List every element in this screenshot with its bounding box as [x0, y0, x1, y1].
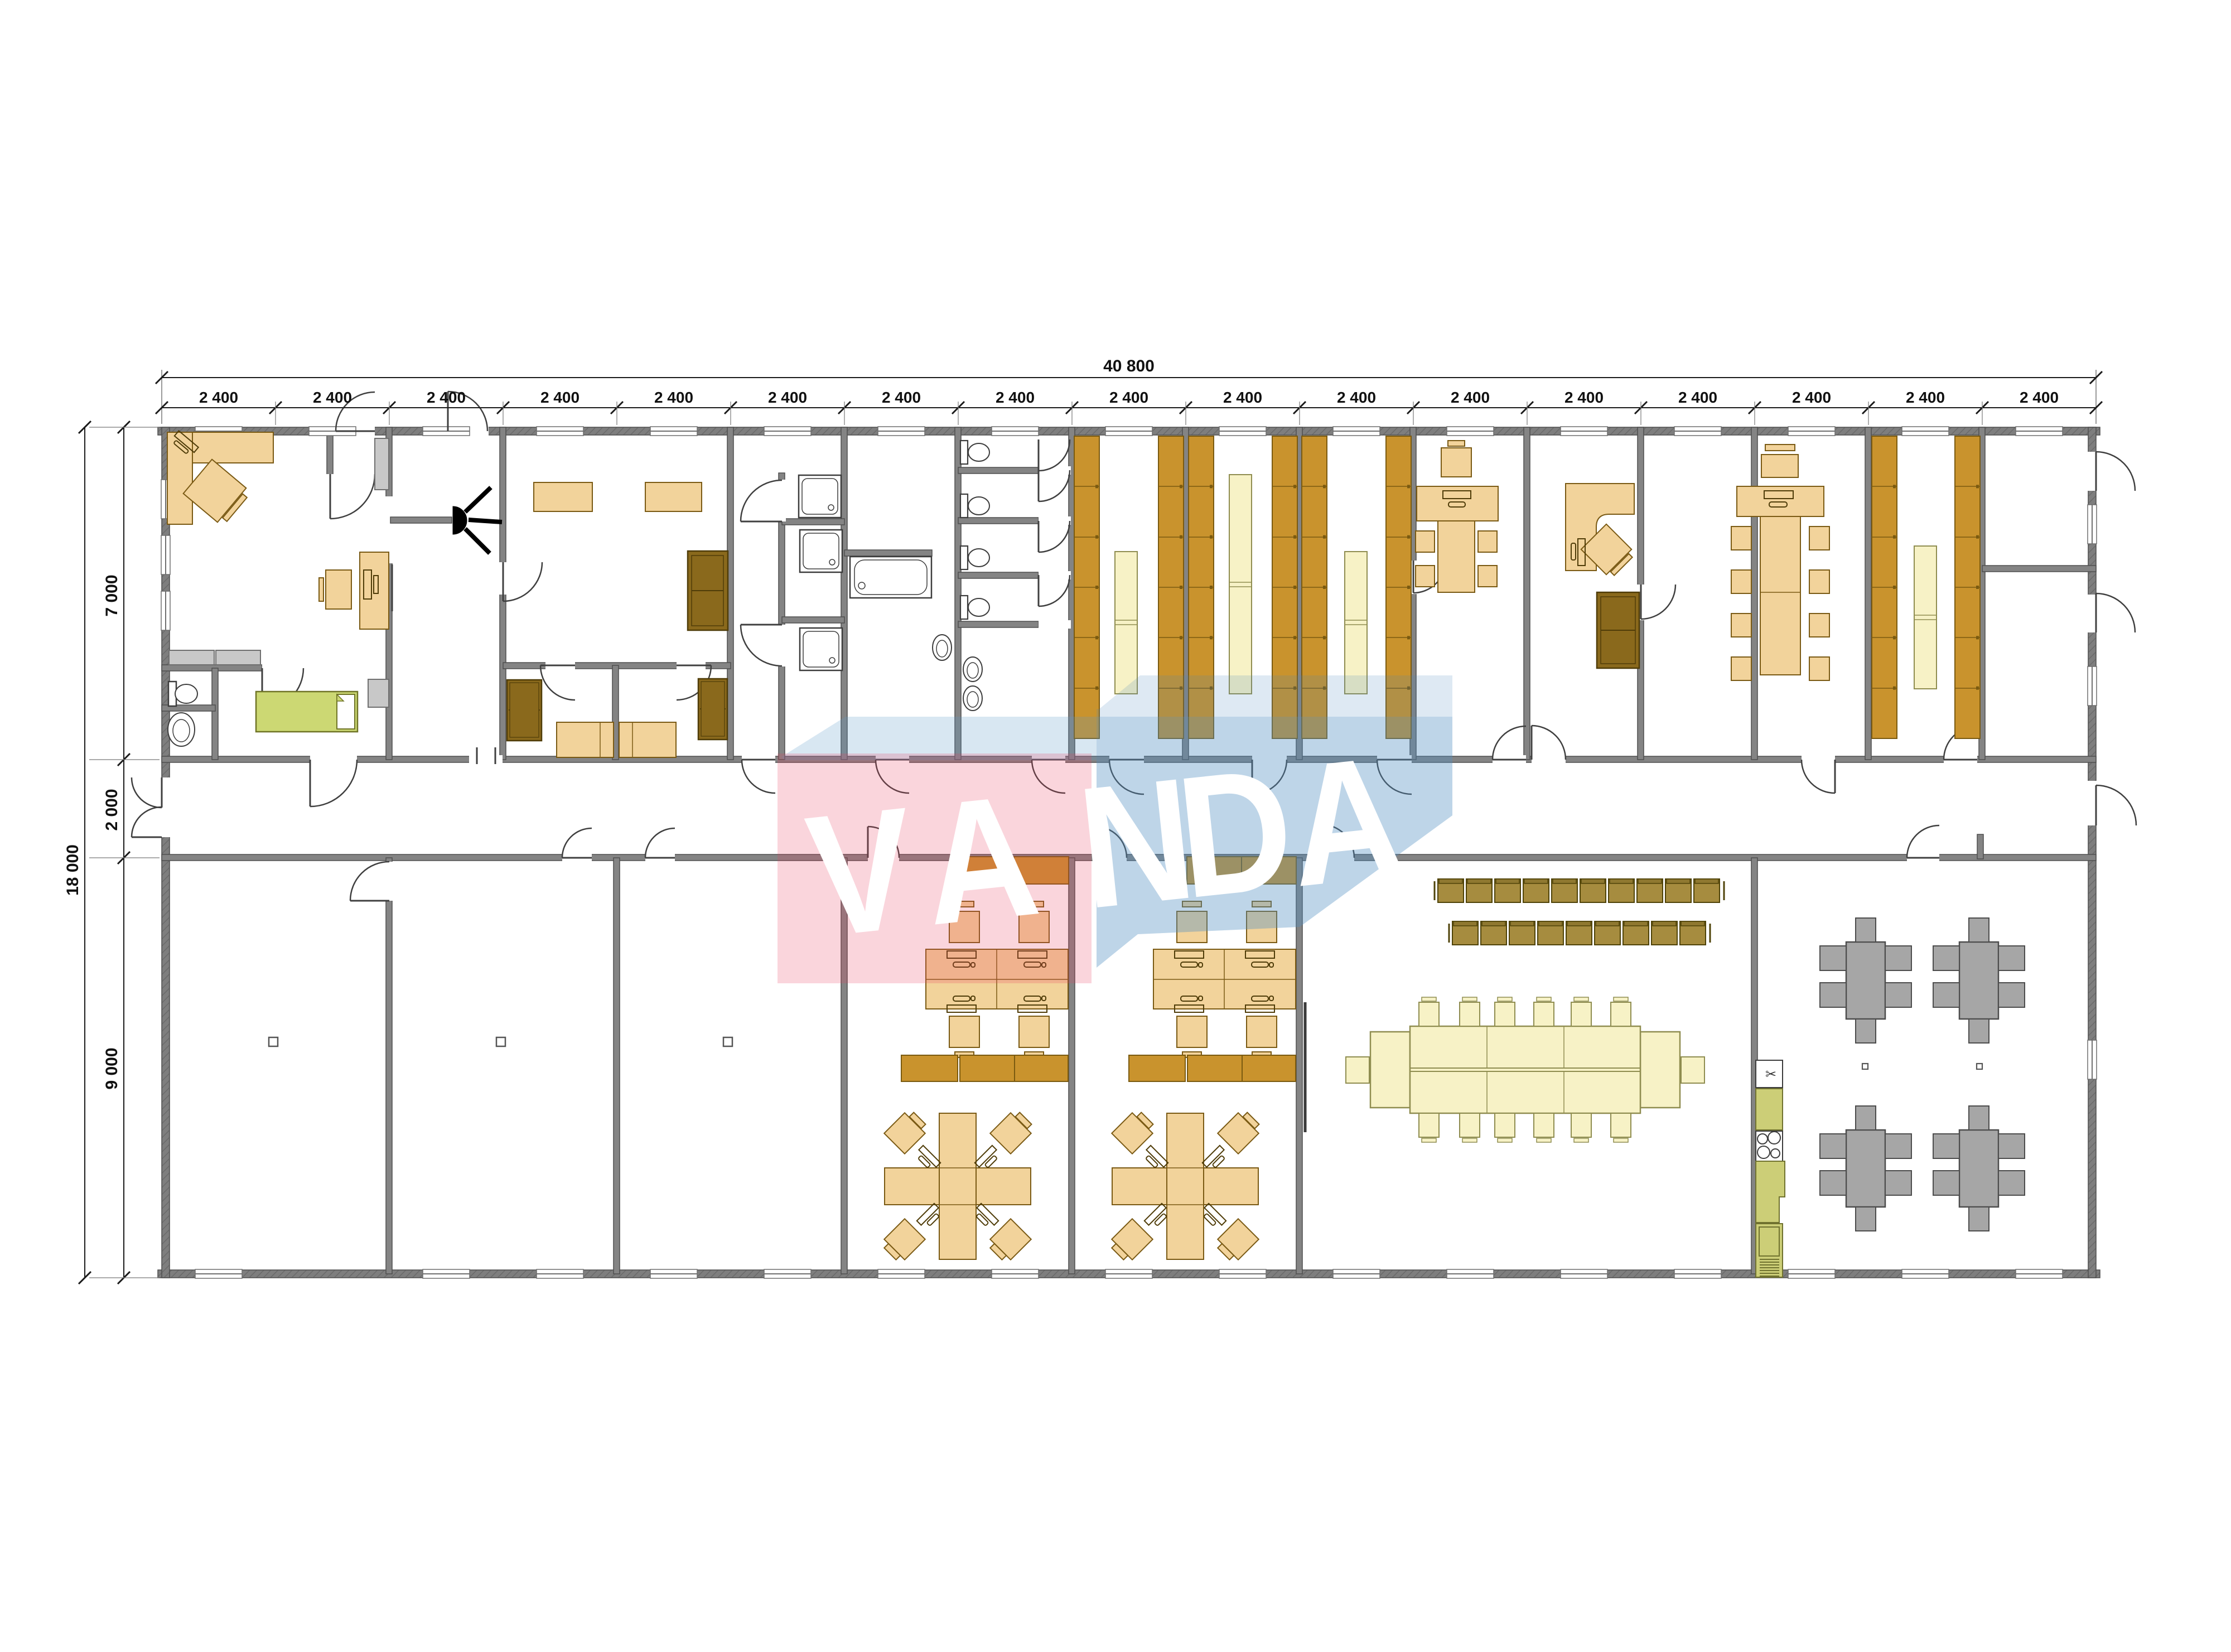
svg-text:18 000: 18 000 [64, 844, 82, 896]
svg-text:2 400: 2 400 [1564, 389, 1604, 406]
svg-text:2 400: 2 400 [313, 389, 352, 406]
svg-text:2 400: 2 400 [1906, 389, 1945, 406]
svg-text:V: V [799, 771, 924, 974]
svg-text:2 400: 2 400 [1109, 389, 1148, 406]
svg-text:2 400: 2 400 [1223, 389, 1262, 406]
svg-text:7 000: 7 000 [103, 574, 121, 616]
svg-text:2 400: 2 400 [882, 389, 921, 406]
svg-text:2 400: 2 400 [2020, 389, 2059, 406]
svg-text:9 000: 9 000 [103, 1047, 121, 1089]
svg-text:A: A [915, 758, 1047, 962]
svg-text:✂: ✂ [1765, 1067, 1776, 1082]
svg-text:2 400: 2 400 [427, 389, 466, 406]
svg-text:2 400: 2 400 [996, 389, 1035, 406]
svg-text:2 400: 2 400 [768, 389, 807, 406]
svg-text:2 400: 2 400 [540, 389, 580, 406]
svg-text:2 400: 2 400 [199, 389, 238, 406]
svg-text:2 400: 2 400 [654, 389, 693, 406]
svg-text:2 000: 2 000 [103, 789, 121, 830]
svg-text:40 800: 40 800 [1103, 357, 1155, 375]
svg-text:A: A [1281, 719, 1413, 923]
svg-text:2 400: 2 400 [1792, 389, 1831, 406]
svg-text:D: D [1170, 731, 1302, 935]
svg-text:2 400: 2 400 [1451, 389, 1490, 406]
svg-text:2 400: 2 400 [1337, 389, 1376, 406]
svg-text:2 400: 2 400 [1678, 389, 1717, 406]
